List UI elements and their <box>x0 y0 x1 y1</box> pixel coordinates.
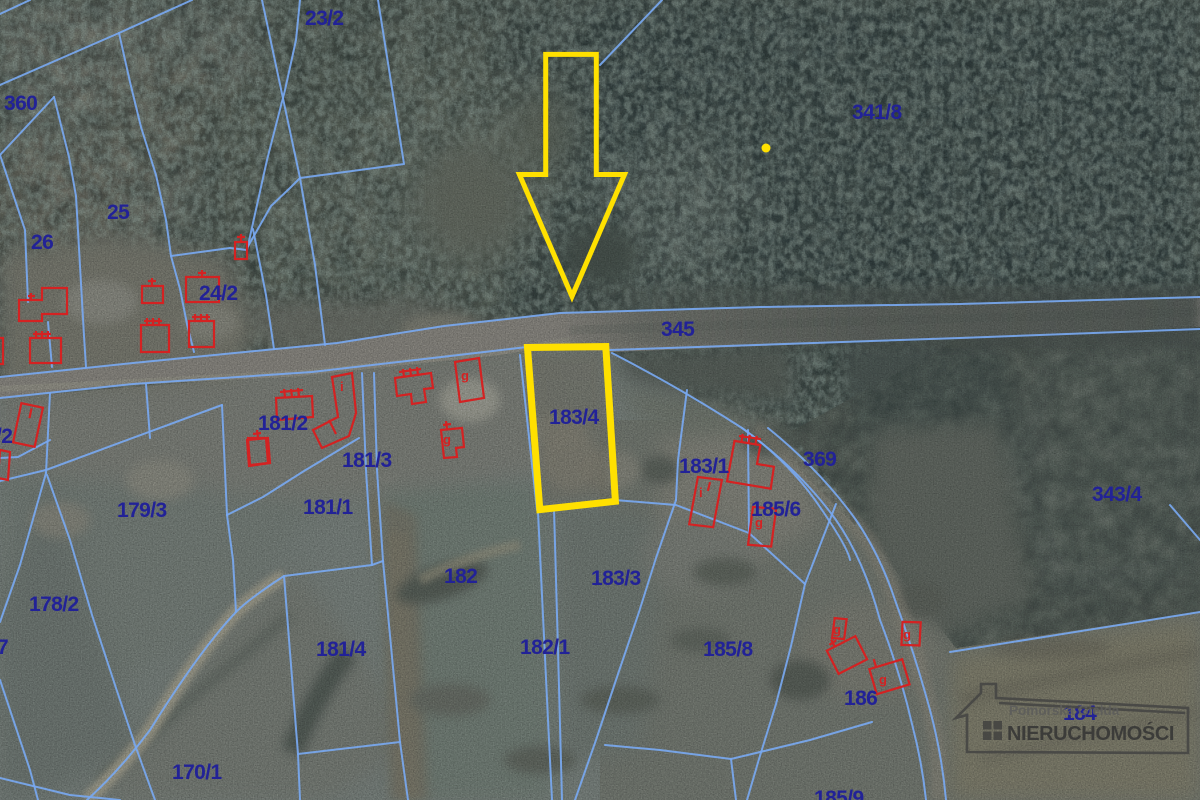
svg-text:182/1: 182/1 <box>520 636 570 659</box>
svg-text:183/4: 183/4 <box>549 406 599 429</box>
svg-text:178/2: 178/2 <box>29 593 79 616</box>
svg-text:7: 7 <box>0 636 8 659</box>
svg-text:Pomorska Giełda: Pomorska Giełda <box>1009 703 1120 718</box>
svg-text:341/8: 341/8 <box>852 101 902 124</box>
svg-text:186: 186 <box>844 687 877 710</box>
svg-text:g: g <box>879 672 887 687</box>
svg-text:/2: /2 <box>0 425 12 448</box>
svg-text:185/9: 185/9 <box>814 787 864 800</box>
svg-text:181/3: 181/3 <box>342 449 392 472</box>
svg-text:185/8: 185/8 <box>703 638 753 661</box>
svg-text:183/1: 183/1 <box>679 455 729 478</box>
svg-text:181/4: 181/4 <box>316 638 366 661</box>
svg-text:343/4: 343/4 <box>1092 483 1142 506</box>
svg-text:185/6: 185/6 <box>751 498 801 521</box>
svg-text:170/1: 170/1 <box>172 761 222 784</box>
svg-text:360: 360 <box>4 92 37 115</box>
svg-text:26: 26 <box>31 231 53 254</box>
svg-text:369: 369 <box>803 448 836 471</box>
svg-text:179/3: 179/3 <box>117 499 167 522</box>
svg-text:NIERUCHOMOŚCI: NIERUCHOMOŚCI <box>1007 721 1174 745</box>
svg-text:23/2: 23/2 <box>305 7 343 30</box>
svg-text:183/3: 183/3 <box>591 567 641 590</box>
svg-text:i: i <box>340 379 344 394</box>
svg-text:g: g <box>903 627 911 642</box>
svg-text:345: 345 <box>661 318 695 341</box>
svg-text:181/1: 181/1 <box>303 496 353 519</box>
svg-text:25: 25 <box>107 201 130 224</box>
svg-text:g: g <box>833 622 841 637</box>
svg-text:181/2: 181/2 <box>258 412 308 435</box>
svg-text:182: 182 <box>444 565 477 588</box>
svg-text:i: i <box>699 485 703 500</box>
svg-text:24/2: 24/2 <box>199 282 237 305</box>
svg-text:g: g <box>443 432 451 447</box>
svg-text:g: g <box>461 368 469 383</box>
